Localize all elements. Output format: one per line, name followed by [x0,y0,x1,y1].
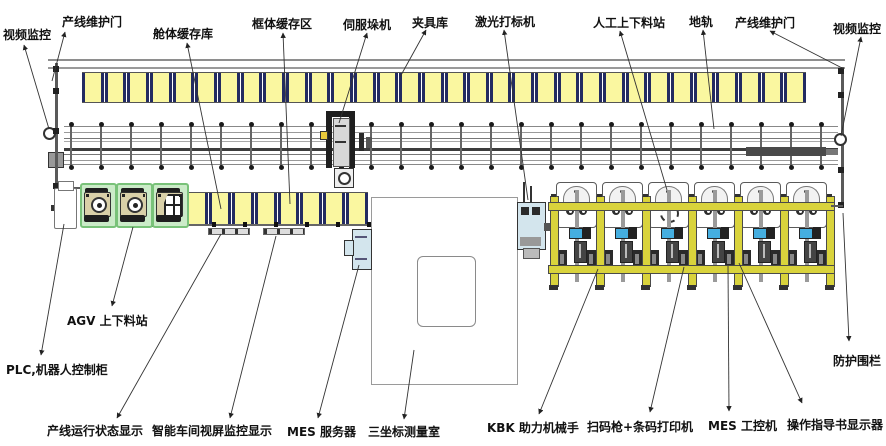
rail-tie [430,126,432,166]
buffer-cell [354,73,376,102]
buffer-cell [346,193,368,225]
leader-barcode-scanner [650,267,684,412]
buffer-cell [603,73,625,102]
plc-cabinet-top [58,181,74,191]
scanner-printer-unit [813,227,821,239]
rail-tie [460,126,462,166]
label-frame-buffer: 框体缓存区 [252,15,312,32]
rail-line [64,141,838,142]
scanner-printer-unit [583,227,591,239]
line-status-display-stand [208,228,250,235]
buffer-cell [278,193,300,225]
leader-fixture-library [400,30,426,77]
leader-video-monitor-right [841,37,861,136]
buffer-cell [422,73,444,102]
station-bracket [712,241,725,263]
leader-mes-ipc [728,266,729,411]
stacker-left-column [326,113,332,168]
buffer-cell [490,73,512,102]
rail-gripper-part [359,133,364,151]
leader-instruction-display [739,263,802,403]
label-ground-rail: 地轨 [689,13,713,30]
rail-tie [70,126,72,166]
buffer-cell [127,73,149,102]
agv-machine-body [120,192,147,217]
buffer-cell [218,73,240,102]
plc-cabinet-handle [51,205,54,211]
label-maintenance-door-left: 产线维护门 [62,13,122,30]
rail-tie [730,126,732,166]
buffer-cell [467,73,489,102]
label-workshop-monitor-display: 智能车间视屏监控显示 [152,422,272,439]
fence-post [53,66,59,72]
station-bracket [620,241,633,263]
fence-post [838,92,844,98]
fence-post [838,167,844,173]
rail-carriage-extension [826,149,838,155]
rail-tie [700,126,702,166]
mes-server-unit [352,229,372,270]
rail-tie [280,126,282,166]
instruction-display-screen [661,228,675,239]
base-dot [305,222,309,227]
label-mes-server: MES 服务器 [287,423,356,440]
cmm-machine-table [417,256,476,327]
buffer-cell [309,73,331,102]
scanner-printer-unit [629,227,637,239]
buffer-cell [739,73,761,102]
label-line-status-display: 产线运行状态显示 [47,422,143,439]
leader-laser-marker [504,30,528,200]
buffer-cell [82,73,104,102]
motor-circle [338,172,351,185]
instruction-display-screen [615,228,629,239]
buffer-cell [626,73,648,102]
label-instruction-display: 操作指导书显示器 [787,416,883,433]
video-camera-right-icon [834,133,847,146]
buffer-cell [716,73,738,102]
label-mes-ipc: MES 工控机 [708,417,777,434]
buffer-cell [232,193,254,225]
buffer-cell [399,73,421,102]
base-dot [274,222,278,227]
leader-video-monitor-left [24,45,49,129]
stacker-detail [335,125,346,127]
buffer-cell [784,73,806,102]
left-perimeter-fence [55,63,58,188]
agv-machine-body [156,192,183,217]
rail-tie [250,126,252,166]
stacker-motor-unit [334,168,354,188]
rail-tie [610,126,612,166]
rail-tie [640,126,642,166]
label-cmm-room: 三坐标测量室 [368,423,440,440]
label-kbk-manipulator: KBK 助力机械手 [487,419,579,436]
agv-machine-base [156,215,181,222]
rail-line [64,164,838,165]
scanner-printer-unit [675,227,683,239]
label-video-monitor-right: 视频监控 [833,20,881,37]
label-laser-marker: 激光打标机 [475,13,535,30]
rail-carriage-bar [746,147,826,156]
laser-marker-antenna [523,182,525,203]
marker-head [532,207,540,215]
buffer-cell [535,73,557,102]
rail-line [64,126,838,127]
label-video-monitor-left: 视频监控 [3,26,51,43]
agv-machine-circle [91,197,107,213]
buffer-cell [648,73,670,102]
rail-line [64,154,838,155]
agv-machine-base [120,215,145,222]
rail-tie [580,126,582,166]
agv-loading-unit [80,183,117,228]
stacker-detail [335,141,346,143]
buffer-cell [173,73,195,102]
rail-tie [220,126,222,166]
rail-tie [550,126,552,166]
agv-window [164,194,182,217]
buffer-cell [762,73,784,102]
buffer-cell [580,73,602,102]
rail-tie [670,126,672,166]
factory-layout-diagram: 视频监控 产线维护门 舱体缓存库 框体缓存区 伺服垛机 夹具库 激光打标机 人工… [0,0,886,446]
buffer-cell [263,73,285,102]
station-bracket [574,241,587,263]
buffer-cell [255,193,277,225]
scanner-printer-unit [767,227,775,239]
kbk-top-beam [548,202,835,211]
rail-tie [820,126,822,166]
buffer-cell [694,73,716,102]
agv-machine-base [84,215,109,222]
stacker-yellow-sensor [320,131,328,140]
top-perimeter-fence [48,59,845,69]
agv-machine-body [84,192,111,217]
buffer-cell [331,73,353,102]
station-bracket [758,241,771,263]
label-barcode-scanner: 扫码枪+条码打印机 [587,418,693,435]
marker-head [521,207,529,215]
leader-maintenance-door-left [52,32,65,81]
laser-marker-antenna [530,186,532,203]
label-servo-stacker: 伺服垛机 [343,16,391,33]
base-dot [243,222,247,227]
rail-tie [190,126,192,166]
rail-line [64,160,838,161]
fence-post [53,88,59,94]
buffer-cell [186,193,208,225]
rail-tie [400,126,402,166]
marker-base [520,237,541,246]
kbk-bottom-beam [548,265,835,274]
buffer-cell [105,73,127,102]
buffer-cell [558,73,580,102]
instruction-display-screen [569,228,583,239]
fixture-library-buffer-row [82,72,806,103]
buffer-cell [241,73,263,102]
base-dot [367,222,371,227]
label-fixture-library: 夹具库 [412,14,448,31]
rail-tie [790,126,792,166]
fence-post [838,68,844,74]
rail-tie [130,126,132,166]
label-protective-fence: 防护围栏 [833,352,881,369]
label-maintenance-door-right: 产线维护门 [735,14,795,31]
servo-stacker-machine [326,111,356,168]
rail-tie [760,126,762,166]
rail-tie [310,126,312,166]
buffer-cell [209,193,231,225]
buffer-cell [671,73,693,102]
fence-post [53,128,59,134]
rail-tie [100,126,102,166]
server-detail [355,236,367,238]
instruction-display-screen [707,228,721,239]
cabin-buffer-row [186,192,368,226]
buffer-cell [323,193,345,225]
buffer-cell [512,73,534,102]
ground-rail-conveyor [64,124,838,168]
buffer-cell [286,73,308,102]
label-cabin-buffer: 舱体缓存库 [153,25,213,42]
rail-tie [490,126,492,166]
fence-frame-connector [831,205,843,207]
marker-foot [523,248,540,259]
leader-mes-server [318,265,359,418]
agv-loading-unit [116,183,153,228]
plc-robot-control-cabinet [54,188,77,229]
label-manual-station: 人工上下料站 [593,14,665,31]
instruction-display-screen [753,228,767,239]
label-plc-cabinet: PLC,机器人控制柜 [6,361,108,378]
buffer-cell [300,193,322,225]
laser-marking-machine [517,202,546,250]
workshop-monitor-display-stand [263,228,305,235]
rail-gripper-part [366,137,372,148]
agv-loading-unit [152,183,189,228]
buffer-cell [445,73,467,102]
rail-tie [520,126,522,166]
base-dot [212,222,216,227]
rail-tie [160,126,162,166]
leader-protective-fence [843,213,849,341]
leader-kbk-manipulator [539,269,598,414]
rail-line [64,138,838,139]
rail-dark-stripe [64,148,838,151]
instruction-display-screen [799,228,813,239]
leader-agv-station [112,227,133,306]
buffer-cell [377,73,399,102]
base-dot [336,222,340,227]
leader-plc-cabinet [41,224,64,355]
scanner-printer-unit [721,227,729,239]
label-agv-station: AGV 上下料站 [67,312,148,329]
leader-workshop-monitor-display [230,236,276,418]
station-bracket [804,241,817,263]
server-detail [355,258,367,260]
mes-server-side-tab [344,240,354,256]
station-bracket [666,241,679,263]
agv-machine-circle [127,197,143,213]
buffer-cell [150,73,172,102]
rail-line [64,132,838,133]
buffer-cell [195,73,217,102]
